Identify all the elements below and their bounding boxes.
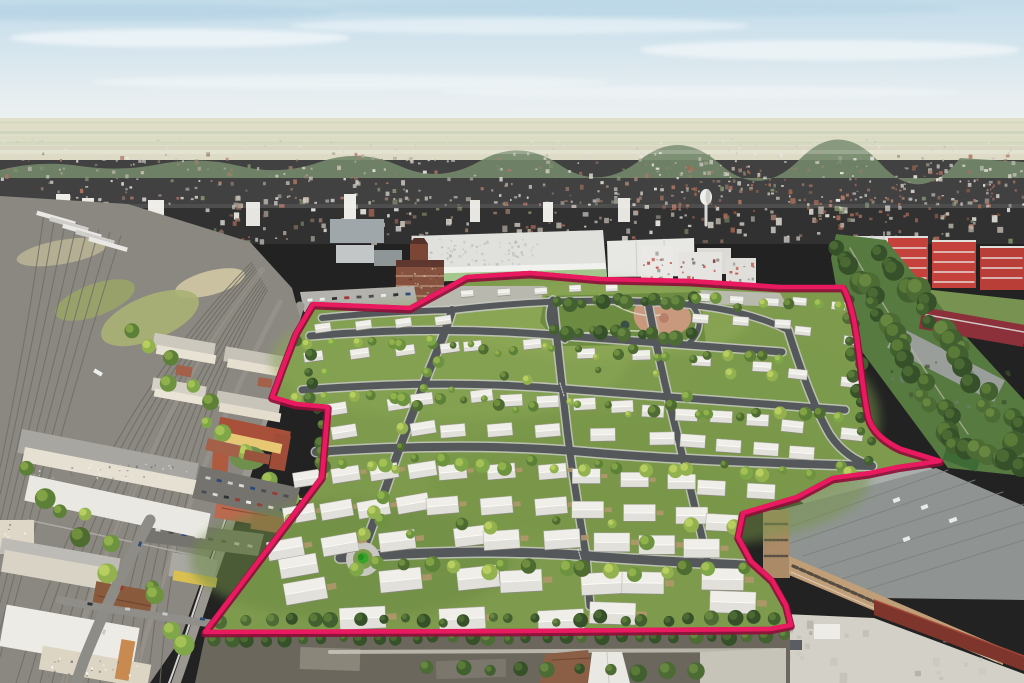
car bbox=[393, 293, 398, 296]
aerial-photo-canvas bbox=[0, 0, 1024, 683]
tree-highlight bbox=[597, 296, 605, 304]
tree-highlight bbox=[669, 332, 677, 340]
house bbox=[747, 483, 776, 499]
house bbox=[692, 314, 709, 324]
driveway bbox=[631, 540, 639, 545]
house-roof-light bbox=[650, 432, 674, 438]
speck bbox=[71, 474, 72, 476]
speck bbox=[735, 273, 738, 275]
roof-ridge bbox=[633, 355, 649, 356]
tree-highlight bbox=[350, 392, 356, 398]
speck bbox=[532, 246, 535, 248]
speck bbox=[126, 477, 128, 479]
tree-highlight bbox=[834, 413, 840, 419]
speck bbox=[647, 262, 650, 265]
speck bbox=[172, 466, 174, 468]
tree-highlight bbox=[543, 343, 547, 347]
tree-highlight bbox=[380, 615, 385, 620]
tree-highlight bbox=[981, 384, 991, 394]
tree-highlight bbox=[328, 339, 333, 344]
tree-highlight bbox=[495, 351, 499, 355]
speck bbox=[165, 477, 167, 479]
house bbox=[314, 322, 331, 333]
tree-highlight bbox=[437, 454, 445, 462]
tree-highlight bbox=[745, 351, 752, 358]
tree-highlight bbox=[509, 347, 514, 352]
tree-highlight bbox=[671, 296, 679, 304]
tree-highlight bbox=[267, 614, 274, 621]
tree-highlight bbox=[723, 351, 729, 357]
tree-highlight bbox=[605, 402, 609, 406]
tree-highlight bbox=[997, 449, 1010, 462]
speck bbox=[33, 474, 35, 475]
tree-highlight bbox=[705, 612, 713, 620]
speck bbox=[796, 653, 801, 656]
tree-highlight bbox=[631, 666, 641, 676]
tree-highlight bbox=[727, 520, 736, 529]
tree-highlight bbox=[692, 294, 698, 300]
speck bbox=[99, 671, 101, 673]
cloud bbox=[90, 75, 610, 89]
tree-highlight bbox=[439, 619, 444, 624]
speck bbox=[109, 466, 111, 468]
tree-highlight bbox=[549, 345, 553, 349]
speck bbox=[471, 259, 474, 262]
speck bbox=[447, 252, 449, 254]
speck bbox=[496, 263, 499, 266]
tree-highlight bbox=[626, 411, 630, 415]
speck bbox=[423, 285, 425, 286]
tree-highlight bbox=[540, 663, 549, 672]
tree-highlight bbox=[79, 509, 86, 516]
tree-highlight bbox=[366, 391, 372, 397]
tree-highlight bbox=[407, 530, 412, 535]
speck bbox=[509, 243, 511, 245]
speck bbox=[512, 263, 514, 265]
tree-highlight bbox=[426, 557, 435, 566]
speck bbox=[158, 478, 160, 479]
tree-highlight bbox=[660, 663, 670, 673]
speck bbox=[967, 406, 971, 409]
speck bbox=[441, 254, 442, 255]
speck bbox=[471, 244, 473, 246]
tree-highlight bbox=[868, 437, 873, 442]
driveway bbox=[676, 542, 684, 547]
tree-highlight bbox=[614, 294, 621, 301]
speck bbox=[118, 469, 120, 470]
tree-highlight bbox=[683, 613, 690, 620]
tree-highlight bbox=[458, 615, 465, 622]
tree-highlight bbox=[703, 410, 709, 416]
house bbox=[395, 317, 412, 328]
house bbox=[536, 395, 559, 408]
tree-highlight bbox=[593, 355, 596, 358]
tree-highlight bbox=[703, 352, 708, 357]
speck bbox=[112, 669, 114, 670]
speck bbox=[129, 674, 131, 676]
house bbox=[753, 442, 779, 457]
tree-highlight bbox=[310, 614, 318, 622]
tree-highlight bbox=[695, 411, 700, 416]
speck bbox=[410, 279, 412, 281]
speck bbox=[97, 477, 99, 479]
tree-highlight bbox=[468, 341, 472, 345]
speck bbox=[530, 249, 532, 252]
speck bbox=[532, 254, 534, 256]
tree-highlight bbox=[306, 350, 313, 357]
tree-highlight bbox=[685, 518, 693, 526]
house bbox=[752, 361, 771, 372]
tree-highlight bbox=[575, 561, 585, 571]
rect bbox=[0, 150, 1024, 208]
speck bbox=[933, 658, 940, 666]
ellipse bbox=[706, 189, 711, 205]
speck bbox=[668, 273, 670, 275]
tree-highlight bbox=[962, 375, 973, 386]
speck bbox=[733, 263, 735, 266]
speck bbox=[955, 401, 959, 404]
tree-highlight bbox=[659, 333, 666, 340]
speck bbox=[657, 269, 660, 272]
speck bbox=[752, 278, 754, 281]
tree-highlight bbox=[513, 407, 517, 411]
red-apartment-block bbox=[932, 242, 976, 288]
speck bbox=[662, 264, 664, 266]
tree-highlight bbox=[402, 614, 407, 619]
speck bbox=[714, 270, 716, 272]
speck bbox=[692, 258, 694, 260]
speck bbox=[128, 465, 129, 467]
tree-highlight bbox=[397, 423, 404, 430]
tree-highlight bbox=[338, 460, 344, 466]
tree-highlight bbox=[806, 470, 812, 476]
tree-highlight bbox=[919, 375, 929, 385]
speck bbox=[438, 239, 439, 240]
tree-highlight bbox=[574, 401, 578, 405]
tree-highlight bbox=[126, 325, 134, 333]
speck bbox=[964, 662, 968, 667]
speck bbox=[71, 467, 73, 469]
tree-highlight bbox=[947, 439, 956, 448]
industrial-box bbox=[336, 245, 374, 263]
driveway bbox=[520, 535, 528, 541]
speck bbox=[127, 470, 129, 471]
tree-highlight bbox=[550, 465, 555, 470]
cloud bbox=[290, 18, 750, 34]
speck bbox=[54, 671, 56, 673]
speck bbox=[427, 292, 429, 293]
tree-highlight bbox=[397, 394, 405, 402]
tree-highlight bbox=[835, 301, 841, 307]
car bbox=[369, 295, 374, 298]
speck bbox=[430, 287, 432, 288]
speck bbox=[100, 661, 102, 662]
house-roof-light bbox=[624, 505, 655, 513]
tree-highlight bbox=[497, 560, 504, 567]
tree-highlight bbox=[669, 465, 677, 473]
speck bbox=[515, 241, 516, 242]
tree-highlight bbox=[748, 611, 756, 619]
speck bbox=[475, 260, 477, 262]
speck bbox=[936, 671, 941, 675]
speck bbox=[54, 662, 55, 663]
tree-highlight bbox=[483, 565, 492, 574]
house-roof-light bbox=[572, 502, 603, 510]
tree-highlight bbox=[379, 459, 387, 467]
house bbox=[794, 326, 811, 337]
tree-highlight bbox=[608, 520, 613, 525]
speck bbox=[439, 274, 440, 275]
tree-highlight bbox=[594, 326, 602, 334]
car bbox=[332, 297, 337, 300]
speck bbox=[105, 669, 107, 671]
tree-highlight bbox=[606, 665, 612, 671]
tree-highlight bbox=[726, 369, 732, 375]
tree-highlight bbox=[550, 325, 556, 331]
tree-highlight bbox=[553, 297, 559, 303]
speck bbox=[508, 260, 510, 261]
speck bbox=[120, 465, 121, 466]
speck bbox=[979, 658, 982, 662]
speck bbox=[863, 630, 869, 637]
tree-highlight bbox=[595, 460, 600, 465]
tree-highlight bbox=[449, 387, 453, 391]
tree-highlight bbox=[871, 309, 879, 317]
tree-highlight bbox=[436, 394, 442, 400]
tree-highlight bbox=[448, 561, 456, 569]
speck bbox=[692, 262, 695, 265]
speck bbox=[449, 250, 451, 251]
tree-highlight bbox=[639, 330, 644, 335]
speck bbox=[441, 246, 443, 248]
speck bbox=[421, 287, 423, 289]
speck bbox=[436, 282, 437, 283]
speck bbox=[99, 474, 101, 476]
driveway bbox=[650, 478, 656, 482]
speck bbox=[840, 673, 848, 683]
roof-ridge bbox=[731, 300, 743, 301]
tree-highlight bbox=[948, 346, 960, 358]
speck bbox=[452, 251, 453, 253]
tree-highlight bbox=[164, 623, 174, 633]
tree-highlight bbox=[649, 406, 656, 413]
tree-highlight bbox=[561, 327, 569, 335]
speck bbox=[512, 255, 514, 257]
speck bbox=[1002, 400, 1007, 404]
tree-highlight bbox=[654, 354, 658, 358]
speck bbox=[435, 268, 436, 269]
tree-highlight bbox=[457, 519, 464, 526]
speck bbox=[683, 261, 685, 264]
tree-highlight bbox=[412, 401, 418, 407]
speck bbox=[430, 252, 433, 254]
tree-highlight bbox=[986, 408, 995, 417]
speck bbox=[432, 268, 434, 269]
tree-highlight bbox=[395, 340, 401, 346]
house bbox=[781, 419, 804, 433]
speck bbox=[935, 362, 937, 364]
speck bbox=[476, 251, 478, 253]
speck bbox=[70, 471, 71, 473]
tree-highlight bbox=[628, 568, 636, 576]
tree-highlight bbox=[20, 462, 28, 470]
cloud bbox=[10, 29, 350, 47]
speck bbox=[845, 634, 849, 638]
house bbox=[355, 319, 372, 330]
tree-highlight bbox=[769, 613, 776, 620]
speck bbox=[451, 240, 452, 242]
tree-highlight bbox=[629, 345, 635, 351]
speck bbox=[458, 255, 461, 258]
speck bbox=[415, 283, 416, 284]
tree-highlight bbox=[500, 372, 505, 377]
tree-highlight bbox=[756, 469, 764, 477]
tree-highlight bbox=[903, 366, 913, 376]
tree-highlight bbox=[450, 342, 454, 346]
house-roof-light bbox=[684, 539, 719, 548]
tree-highlight bbox=[421, 661, 428, 668]
car bbox=[356, 296, 361, 299]
speck bbox=[136, 665, 137, 666]
tree-highlight bbox=[262, 637, 268, 643]
tree-highlight bbox=[322, 369, 327, 374]
speck bbox=[103, 665, 104, 666]
speck bbox=[61, 675, 62, 676]
tree-highlight bbox=[1005, 410, 1015, 420]
tree-highlight bbox=[318, 421, 323, 426]
speck bbox=[143, 476, 145, 478]
tree-highlight bbox=[662, 567, 669, 574]
house bbox=[535, 423, 561, 438]
speck bbox=[452, 256, 453, 257]
speck bbox=[435, 287, 436, 288]
house bbox=[440, 423, 466, 438]
tree-highlight bbox=[687, 328, 693, 334]
car bbox=[381, 294, 386, 297]
tree-highlight bbox=[461, 397, 465, 401]
tree-highlight bbox=[567, 399, 571, 403]
speck bbox=[643, 264, 645, 266]
tree-highlight bbox=[739, 563, 746, 570]
speck bbox=[463, 241, 465, 244]
tree-highlight bbox=[846, 337, 851, 342]
speck bbox=[891, 370, 893, 373]
speck bbox=[716, 259, 719, 262]
container bbox=[814, 624, 840, 639]
tree-highlight bbox=[759, 299, 764, 304]
tree-highlight bbox=[392, 465, 397, 470]
tree-highlight bbox=[954, 358, 965, 369]
tree-highlight bbox=[779, 467, 784, 472]
tree-highlight bbox=[945, 409, 955, 419]
tree-highlight bbox=[426, 336, 432, 342]
roof-ridge bbox=[607, 288, 617, 289]
house bbox=[534, 287, 547, 295]
house bbox=[792, 297, 807, 306]
speck bbox=[424, 275, 426, 277]
cloud bbox=[440, 86, 960, 98]
speck bbox=[71, 661, 73, 663]
tree-highlight bbox=[866, 297, 873, 304]
car bbox=[320, 298, 325, 301]
driveway bbox=[721, 546, 729, 551]
tree-highlight bbox=[594, 611, 602, 619]
tree-highlight bbox=[371, 557, 378, 564]
house bbox=[569, 285, 581, 293]
tree-highlight bbox=[433, 357, 440, 364]
car bbox=[307, 298, 312, 301]
speck bbox=[436, 277, 437, 279]
speck bbox=[4, 533, 6, 535]
tree-highlight bbox=[479, 345, 485, 351]
tree-highlight bbox=[752, 409, 757, 414]
tree-highlight bbox=[815, 299, 820, 304]
speck bbox=[88, 467, 90, 469]
tree-highlight bbox=[553, 619, 558, 624]
speck bbox=[522, 254, 524, 256]
speck bbox=[522, 239, 524, 240]
speck bbox=[402, 273, 403, 274]
speck bbox=[751, 263, 754, 267]
house bbox=[729, 296, 743, 305]
tree-highlight bbox=[423, 368, 428, 373]
car bbox=[200, 617, 205, 620]
tree-highlight bbox=[355, 613, 362, 620]
car bbox=[344, 296, 349, 299]
tree-highlight bbox=[618, 328, 626, 336]
speck bbox=[739, 279, 741, 282]
tree-highlight bbox=[621, 617, 627, 623]
speck bbox=[48, 675, 49, 676]
house bbox=[774, 319, 791, 329]
tree-highlight bbox=[840, 257, 851, 268]
speck bbox=[186, 471, 187, 472]
speck bbox=[131, 476, 133, 477]
tree-highlight bbox=[646, 327, 653, 334]
speck bbox=[830, 658, 837, 666]
speck bbox=[661, 258, 664, 261]
tree-highlight bbox=[561, 561, 570, 570]
tree-highlight bbox=[865, 457, 870, 462]
tree-highlight bbox=[575, 664, 581, 670]
house bbox=[590, 428, 615, 441]
tree-highlight bbox=[614, 350, 620, 356]
tree-highlight bbox=[846, 349, 854, 357]
tree-highlight bbox=[653, 371, 657, 375]
tree-highlight bbox=[215, 426, 225, 436]
speck bbox=[670, 262, 672, 264]
speck bbox=[118, 662, 119, 664]
speck bbox=[8, 530, 9, 532]
tree-highlight bbox=[54, 506, 62, 514]
aerial-development-photo bbox=[0, 0, 1024, 683]
speck bbox=[66, 468, 67, 469]
speck bbox=[692, 277, 694, 280]
speck bbox=[702, 264, 704, 266]
speck bbox=[682, 272, 684, 274]
tree-highlight bbox=[885, 261, 897, 273]
rect bbox=[0, 118, 1024, 154]
tree-highlight bbox=[1013, 417, 1023, 427]
driveway bbox=[516, 468, 523, 473]
driveway bbox=[757, 600, 767, 607]
tree-highlight bbox=[368, 338, 373, 343]
tree-highlight bbox=[917, 303, 924, 310]
tree-highlight bbox=[350, 563, 358, 571]
house bbox=[789, 446, 815, 461]
driveway bbox=[543, 576, 553, 583]
speck bbox=[511, 246, 513, 249]
